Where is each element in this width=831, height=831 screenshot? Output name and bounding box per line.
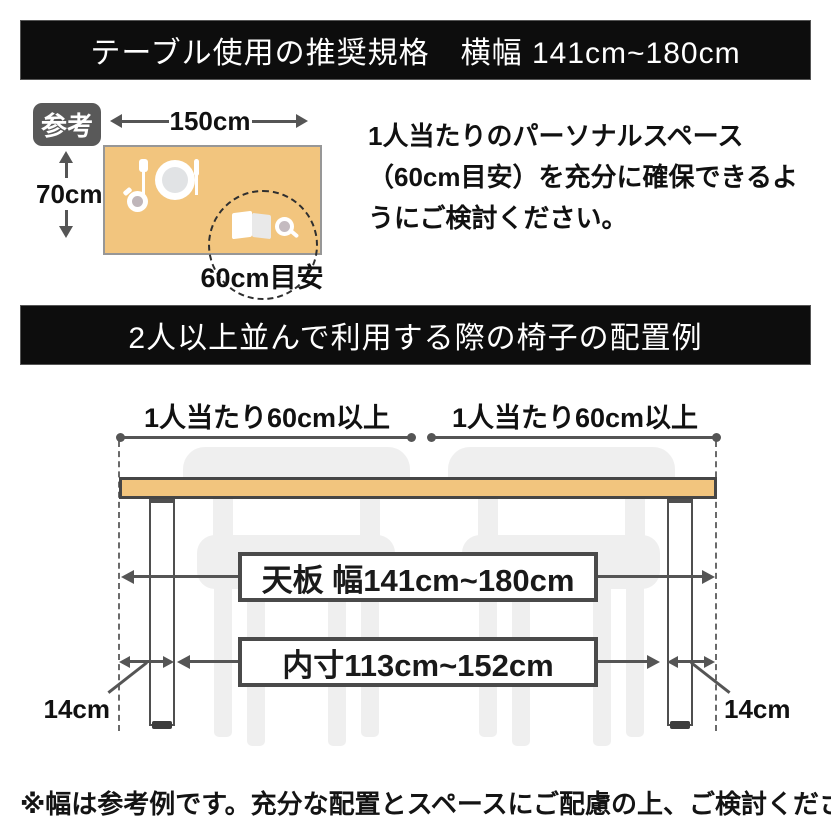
knife-icon [194, 159, 202, 197]
plate-icon [155, 160, 195, 200]
arrow-head-down-icon [59, 226, 73, 238]
book-right-page [252, 213, 271, 239]
arrow-shaft [252, 120, 297, 123]
magnifier-glass [279, 221, 290, 232]
leg-cap [669, 499, 691, 503]
arrow-shaft [121, 120, 169, 123]
personal-space-note: 1人当たりのパーソナルスペース（60cm目安）を充分に確保できるようにご検討くだ… [368, 116, 808, 239]
tabletop-width-label: 天板 幅141cm~180cm [262, 555, 575, 600]
arrow-shaft [65, 210, 68, 226]
reference-badge: 参考 [33, 103, 101, 146]
per-person-label-right: 1人当たり60cm以上 [425, 396, 725, 435]
tabletop-front [119, 477, 717, 499]
arrow-shaft [596, 575, 703, 578]
header-banner-title: テーブル使用の推奨規格 横幅 141cm~180cm [90, 28, 740, 72]
reference-badge-label: 参考 [41, 106, 93, 143]
arrow-head-right-icon [647, 655, 660, 669]
arrow-shaft [65, 162, 68, 178]
book-left-page [232, 211, 252, 239]
arrow-head-right-icon [702, 570, 715, 584]
arrow-head-right-icon [163, 656, 174, 668]
leg-inset-label-left: 14cm [30, 694, 110, 725]
table-leg-left [149, 497, 175, 726]
magnifier-handle [290, 230, 299, 239]
leg-cap [151, 499, 173, 503]
table-width-label: 150cm [169, 106, 251, 137]
line-end-dot [712, 433, 721, 442]
section-banner: 2人以上並んで利用する際の椅子の配置例 [20, 305, 811, 365]
magnifier-icon [275, 217, 299, 241]
tabletop-width-box: 天板 幅141cm~180cm [238, 552, 598, 602]
section-banner-title: 2人以上並んで利用する際の椅子の配置例 [128, 313, 702, 357]
arrow-shaft [188, 660, 240, 663]
leg-inset-label-right: 14cm [724, 694, 808, 725]
knife-handle [195, 163, 198, 195]
chair-leg [626, 541, 644, 737]
arrow-shaft [132, 575, 240, 578]
arrow-head-right-icon [704, 656, 715, 668]
cup-icon [125, 189, 149, 213]
header-banner: テーブル使用の推奨規格 横幅 141cm~180cm [20, 20, 811, 80]
footnote: ※幅は参考例です。充分な配置とスペースにご配慮の上、ご検討ください。 [20, 784, 815, 821]
cup-inner [132, 196, 143, 207]
chair-leg [214, 541, 232, 737]
table-leg-right [667, 497, 693, 726]
table-size-infographic: テーブル使用の推奨規格 横幅 141cm~180cm 参考 150cm 70cm [0, 0, 831, 831]
leg-foot-left [152, 721, 172, 729]
line-end-dot [407, 433, 416, 442]
plate-inner [162, 167, 188, 193]
inner-width-label: 内寸113cm~152cm [282, 640, 553, 685]
line-shaft [434, 436, 715, 439]
per-person-label-left: 1人当たり60cm以上 [117, 396, 417, 435]
inner-width-box: 内寸113cm~152cm [238, 637, 598, 687]
book-icon [232, 212, 273, 239]
line-shaft [122, 436, 412, 439]
table-depth-label: 70cm [36, 179, 96, 210]
leg-foot-right [670, 721, 690, 729]
arrow-head-right-icon [296, 114, 308, 128]
arrow-shaft [596, 660, 648, 663]
space-hint-label: 60cm目安 [197, 256, 327, 295]
